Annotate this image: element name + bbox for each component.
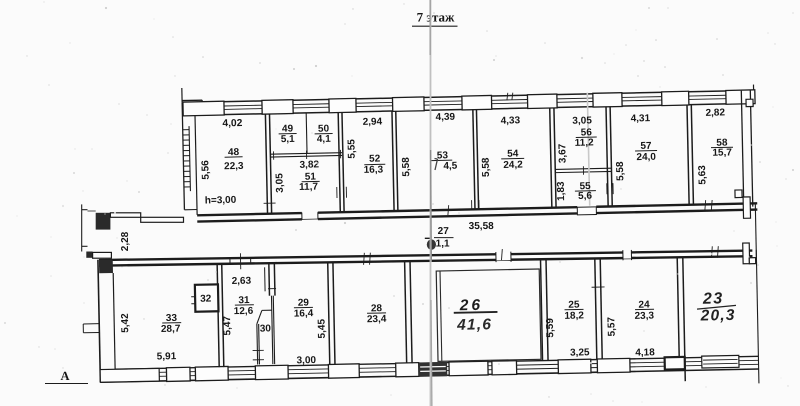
- svg-text:30: 30: [260, 323, 272, 334]
- svg-text:5,42: 5,42: [120, 313, 131, 333]
- svg-text:24,2: 24,2: [503, 160, 523, 171]
- svg-text:3,05: 3,05: [274, 173, 285, 193]
- svg-text:4,5: 4,5: [443, 161, 458, 172]
- svg-text:23,3: 23,3: [634, 311, 654, 322]
- svg-text:11,2: 11,2: [575, 137, 595, 148]
- svg-text:7 этаж: 7 этаж: [417, 9, 455, 24]
- svg-text:5,58: 5,58: [481, 157, 492, 177]
- svg-text:5,58: 5,58: [401, 157, 412, 177]
- svg-text:5,63: 5,63: [697, 165, 708, 185]
- svg-text:20,3: 20,3: [700, 307, 736, 325]
- svg-text:5,1: 5,1: [281, 134, 296, 145]
- svg-text:h=3,00: h=3,00: [205, 195, 237, 207]
- svg-text:27: 27: [438, 226, 450, 237]
- svg-text:4,1: 4,1: [317, 134, 332, 145]
- svg-text:4,18: 4,18: [635, 347, 655, 358]
- svg-text:15,7: 15,7: [712, 147, 732, 158]
- svg-text:4,02: 4,02: [222, 118, 242, 129]
- svg-text:16,4: 16,4: [294, 308, 314, 319]
- svg-text:52: 52: [369, 153, 381, 164]
- svg-text:3,05: 3,05: [572, 115, 592, 126]
- svg-text:5,58: 5,58: [615, 161, 626, 181]
- svg-text:32: 32: [200, 294, 212, 305]
- svg-text:2,94: 2,94: [363, 116, 383, 127]
- svg-text:2,82: 2,82: [705, 107, 725, 118]
- svg-text:3,00: 3,00: [296, 355, 316, 366]
- svg-text:5,57: 5,57: [606, 316, 617, 336]
- svg-text:4,39: 4,39: [435, 112, 455, 123]
- svg-text:5,56: 5,56: [200, 160, 211, 180]
- svg-text:2,28: 2,28: [120, 231, 131, 251]
- svg-text:24,0: 24,0: [636, 152, 656, 163]
- svg-text:23: 23: [702, 290, 724, 307]
- svg-text:41,6: 41,6: [456, 316, 492, 334]
- svg-text:5,47: 5,47: [222, 315, 233, 335]
- svg-text:1,83: 1,83: [556, 181, 567, 201]
- svg-text:3,67: 3,67: [557, 143, 568, 163]
- svg-text:3,25: 3,25: [570, 347, 590, 358]
- svg-text:11,7: 11,7: [299, 182, 319, 193]
- svg-text:4,33: 4,33: [501, 115, 521, 126]
- svg-text:4,31: 4,31: [631, 113, 651, 124]
- svg-text:3,82: 3,82: [299, 159, 319, 170]
- svg-text:35,58: 35,58: [469, 221, 494, 232]
- svg-text:12,6: 12,6: [234, 306, 254, 317]
- svg-text:5,45: 5,45: [316, 318, 327, 338]
- svg-text:28,7: 28,7: [161, 324, 181, 335]
- svg-text:А: А: [60, 369, 69, 383]
- svg-text:5,59: 5,59: [545, 318, 556, 338]
- svg-text:1,1: 1,1: [436, 239, 450, 250]
- svg-text:16,3: 16,3: [364, 164, 384, 175]
- svg-text:23,4: 23,4: [367, 314, 387, 325]
- svg-text:18,2: 18,2: [564, 310, 584, 321]
- svg-text:2,63: 2,63: [232, 276, 252, 287]
- svg-text:22,3: 22,3: [224, 161, 244, 172]
- svg-text:5,91: 5,91: [157, 351, 177, 362]
- svg-text:5,55: 5,55: [346, 139, 357, 159]
- svg-text:5,6: 5,6: [578, 191, 593, 202]
